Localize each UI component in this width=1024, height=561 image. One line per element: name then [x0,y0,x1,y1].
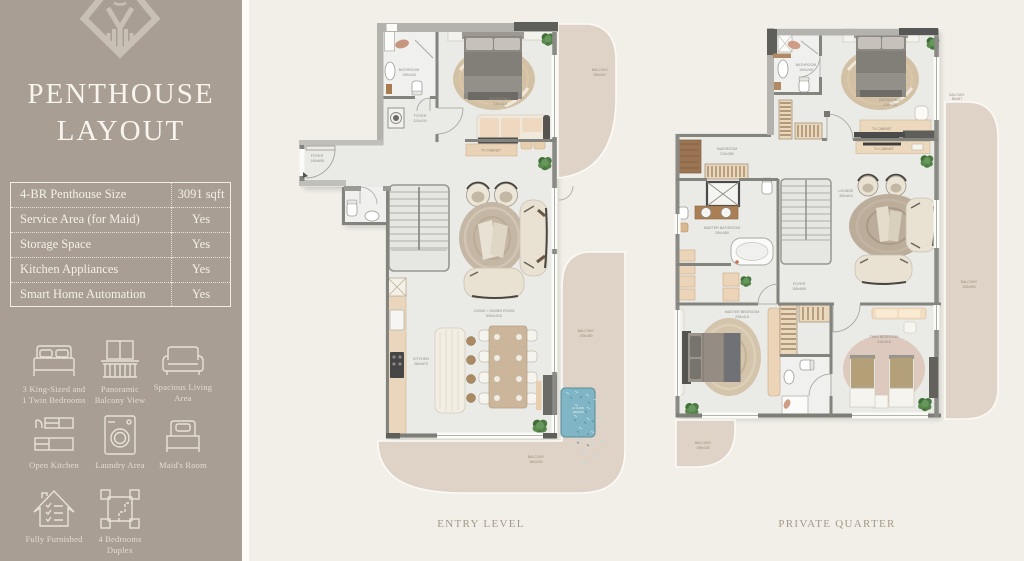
svg-text:LOUNGE: LOUNGE [838,189,854,193]
svg-text:195x235: 195x235 [696,446,709,450]
svg-text:MASTER BATHROOM: MASTER BATHROOM [704,226,740,230]
svg-text:BATHROOM: BATHROOM [796,63,817,67]
svg-text:FOYER: FOYER [793,282,806,286]
svg-text:410x615: 410x615 [877,340,891,344]
svg-text:290x380: 290x380 [715,231,729,235]
svg-text:110x190: 110x190 [413,119,427,123]
svg-text:BALCONY: BALCONY [578,329,595,333]
svg-text:155x695: 155x695 [792,287,806,291]
svg-text:BALCONY: BALCONY [528,455,545,459]
svg-text:205x480: 205x480 [579,334,592,338]
svg-text:590x1015: 590x1015 [486,314,502,318]
svg-text:85x647: 85x647 [952,97,963,101]
svg-text:BALCONY: BALCONY [695,441,712,445]
svg-text:LIVING + DINING ROOM: LIVING + DINING ROOM [474,309,515,313]
svg-text:TV CABINET: TV CABINET [874,147,894,151]
svg-text:BALCONY: BALCONY [592,68,609,72]
svg-text:255x647: 255x647 [593,73,606,77]
svg-text:360x200: 360x200 [529,460,542,464]
svg-text:MAIDROOM: MAIDROOM [717,147,737,151]
svg-text:BEDROOM 2: BEDROOM 2 [879,98,901,102]
svg-text:FOYER: FOYER [414,114,427,118]
svg-text:MASTER BEDROOM: MASTER BEDROOM [725,310,760,314]
svg-text:TV CABINET: TV CABINET [872,127,892,131]
svg-text:280x670: 280x670 [414,362,428,366]
svg-text:150x150: 150x150 [572,410,584,414]
svg-text:BATHROOM: BATHROOM [399,68,420,72]
svg-text:210x380: 210x380 [720,152,734,156]
svg-text:BALCONY: BALCONY [961,280,978,284]
svg-text:KITCHEN: KITCHEN [413,357,429,361]
svg-text:BEDROOM 1: BEDROOM 1 [489,97,511,101]
svg-text:410x425: 410x425 [883,103,897,107]
svg-text:190x240: 190x240 [402,73,416,77]
svg-text:350x610: 350x610 [839,194,853,198]
svg-text:410x415: 410x415 [493,102,507,106]
svg-text:TWIN BEDROOM: TWIN BEDROOM [870,335,899,339]
svg-text:190x245: 190x245 [799,68,813,72]
svg-text:295x415: 295x415 [735,315,749,319]
svg-text:FOYER: FOYER [311,154,324,158]
svg-text:205x593: 205x593 [962,285,975,289]
svg-text:TV CABINET: TV CABINET [481,149,501,153]
svg-text:140x695: 140x695 [310,159,324,163]
